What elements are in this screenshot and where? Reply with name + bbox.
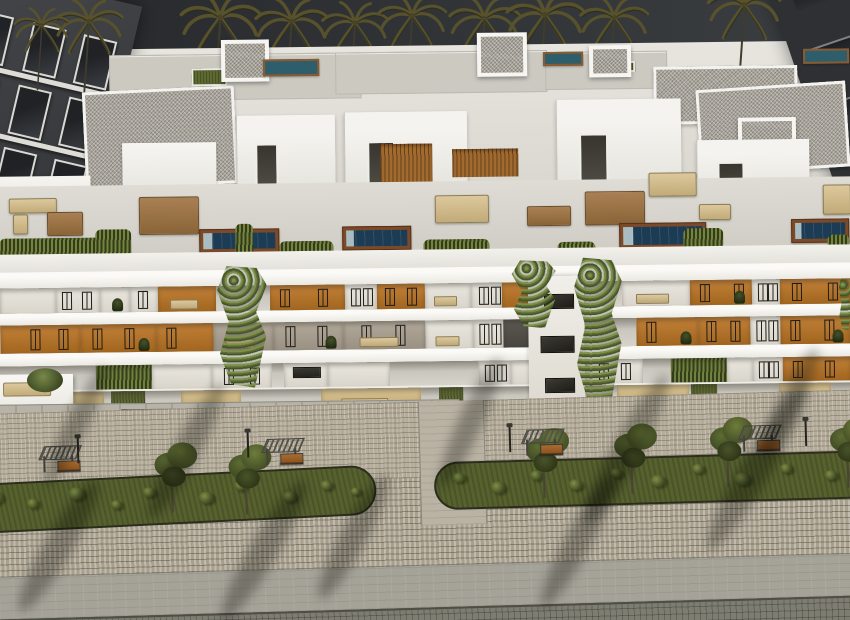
balcony-window	[363, 288, 373, 306]
balcony-window	[768, 283, 778, 301]
balcony-segment	[270, 285, 345, 311]
roof-block-tower	[221, 39, 270, 82]
roof-block-tower	[477, 32, 528, 77]
tree-trunk	[245, 489, 248, 515]
balcony-window	[828, 282, 838, 300]
terrace-sofa	[13, 214, 28, 234]
balcony-segment	[671, 358, 727, 383]
balcony-segment	[750, 316, 780, 344]
balcony-plant	[832, 329, 843, 342]
balcony-segment	[0, 288, 56, 314]
terrace-sofa	[648, 172, 696, 197]
balcony-window	[285, 326, 295, 347]
balcony-segment	[636, 317, 698, 346]
balcony-window	[825, 361, 835, 378]
shrub	[27, 368, 63, 392]
balcony-segment	[152, 364, 212, 389]
tree	[846, 462, 850, 488]
balcony-window	[62, 292, 72, 310]
bench-seat	[540, 444, 563, 456]
balcony-segment	[273, 322, 343, 351]
terrace-sofa	[435, 195, 489, 224]
terrace-hedge	[683, 228, 723, 247]
tree	[244, 489, 249, 515]
balcony-segment	[56, 288, 100, 314]
pergola-post	[743, 436, 745, 452]
balcony-window	[646, 322, 656, 343]
balcony-plant	[680, 331, 691, 344]
balcony-window	[706, 321, 716, 342]
balcony-segment	[425, 283, 471, 309]
balcony-window	[30, 329, 40, 350]
tree	[630, 468, 635, 494]
stairwell-window	[540, 336, 574, 353]
balcony-window	[318, 289, 328, 307]
balcony-segment	[473, 320, 503, 348]
balcony-window	[351, 288, 361, 306]
balcony-plant	[325, 336, 336, 349]
signage-panel	[293, 367, 321, 378]
pergola-post	[266, 449, 268, 465]
tree-trunk	[631, 468, 634, 494]
neighbor-window-band	[791, 0, 850, 11]
balcony-window	[730, 321, 740, 342]
balcony-segment	[345, 284, 377, 309]
roof-lap-pool	[543, 52, 583, 66]
balcony-furniture	[434, 296, 457, 306]
bench-seat	[280, 453, 303, 465]
street-scene	[0, 388, 850, 620]
balcony-furniture	[636, 294, 669, 304]
plunge-pool	[342, 226, 411, 251]
balcony-segment	[622, 280, 690, 306]
palm-tree	[11, 6, 72, 92]
gravel-roof-top	[593, 49, 627, 73]
roof-lap-pool	[263, 59, 319, 77]
balcony-window	[280, 289, 290, 307]
balcony-segment	[690, 280, 752, 306]
terrace-sofa	[699, 204, 731, 220]
roof-lap-pool	[803, 48, 849, 64]
tree	[542, 472, 547, 498]
balcony-plant	[734, 291, 745, 304]
balcony-window	[58, 329, 68, 350]
balcony-segment	[80, 324, 156, 353]
balcony-window	[479, 324, 489, 345]
balcony-segment	[328, 362, 390, 387]
pool-water	[346, 230, 407, 247]
balcony-window	[82, 292, 92, 310]
terrace-table	[527, 206, 571, 227]
terrace-sofa	[823, 184, 850, 214]
balcony-window	[790, 320, 800, 341]
balcony-window	[385, 288, 395, 306]
balcony-window	[138, 291, 148, 309]
roof-block-tower	[589, 45, 631, 78]
balcony-segment	[343, 321, 425, 350]
gravel-roof-top	[481, 36, 523, 73]
balcony-window	[758, 283, 768, 301]
balcony-window	[792, 283, 802, 301]
balcony-window	[92, 328, 102, 349]
balcony-plant	[112, 298, 123, 311]
terrace-table	[585, 191, 645, 226]
balcony-segment	[130, 287, 158, 312]
balcony-window	[479, 287, 489, 305]
balcony-window	[166, 328, 176, 349]
balcony-window	[124, 328, 134, 349]
balcony-furniture	[435, 336, 459, 346]
roof-block-wood	[380, 143, 433, 186]
gravel-roof-top	[225, 43, 265, 77]
balcony-segment	[698, 317, 750, 346]
tree-trunk	[847, 462, 850, 488]
balcony-segment	[425, 320, 473, 349]
balcony-window	[491, 287, 501, 305]
balcony-window	[768, 320, 778, 341]
balcony-segment	[100, 287, 130, 312]
aerial-architectural-render	[0, 0, 850, 620]
balcony-window	[759, 361, 769, 378]
balcony-window	[756, 320, 766, 341]
bench	[264, 438, 307, 471]
balcony-window	[407, 288, 417, 306]
balcony-window	[621, 363, 631, 380]
balcony-segment	[753, 357, 783, 381]
balcony-window	[769, 361, 779, 378]
balcony-segment	[158, 286, 216, 312]
terrace-table	[47, 212, 83, 236]
balcony-segment	[377, 284, 425, 310]
bench	[524, 429, 567, 462]
roof-block-wood	[452, 148, 518, 177]
balcony-segment	[471, 283, 502, 308]
tree-trunk	[727, 461, 730, 487]
tree-trunk	[543, 472, 546, 498]
neighbor-window	[7, 84, 52, 140]
terrace-table	[139, 196, 199, 235]
balcony-window	[700, 284, 710, 302]
balcony-plant	[138, 338, 149, 351]
stairwell-window	[545, 378, 575, 393]
balcony-segment	[780, 315, 850, 344]
balcony-segment	[727, 358, 753, 382]
balcony-furniture	[359, 337, 398, 347]
pergola-post	[526, 440, 528, 456]
balcony-segment	[284, 363, 328, 388]
balcony-segment	[156, 323, 213, 352]
balcony-window	[491, 324, 501, 345]
balcony-segment	[0, 325, 80, 354]
balcony-segment	[752, 279, 780, 304]
balcony-furniture	[170, 299, 198, 309]
